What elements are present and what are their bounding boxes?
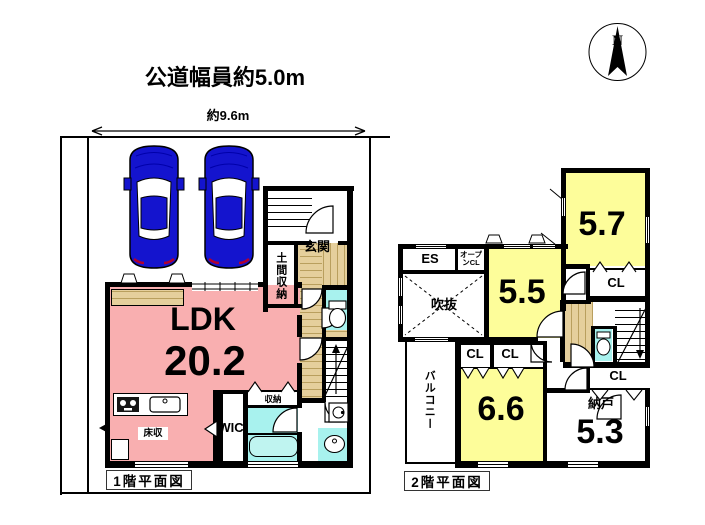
lot-line-left <box>87 137 89 494</box>
balcony-label: バルコニー <box>420 362 437 438</box>
wall <box>455 461 478 468</box>
storeroom-label: 納戸 <box>583 396 619 411</box>
storeroom-area-label: 5.3 <box>572 412 628 454</box>
window <box>645 407 650 426</box>
road-line-left <box>60 136 62 495</box>
wall <box>543 341 547 468</box>
wall <box>347 186 353 468</box>
wall <box>247 405 299 408</box>
wall <box>484 244 489 342</box>
wall <box>455 341 460 461</box>
window <box>416 244 446 249</box>
ldk-area-label: 20.2 <box>143 338 267 384</box>
car-icon <box>124 146 184 268</box>
lot-line-bottom <box>61 492 371 494</box>
closet-label: CL <box>496 346 524 362</box>
wall <box>398 270 487 274</box>
bedroom-5-5-label: 5.5 <box>494 272 550 314</box>
wall <box>322 290 326 308</box>
window <box>248 461 298 468</box>
wall <box>188 461 248 468</box>
wall <box>560 300 591 304</box>
wall <box>322 337 352 341</box>
toilet-room-1f <box>324 290 348 330</box>
washing-machine-icon <box>329 403 348 422</box>
wall <box>105 282 110 468</box>
cabinet <box>111 439 129 460</box>
window <box>415 337 448 342</box>
closet-line <box>590 268 646 270</box>
floor2-caption: 2階平面図 <box>404 471 490 491</box>
road-width-label: 公道幅員約5.0m <box>135 63 315 93</box>
closet-label: CL <box>598 368 638 384</box>
wall <box>297 315 302 337</box>
hallway-1f <box>300 245 322 403</box>
wall <box>586 296 650 302</box>
wall <box>298 461 353 468</box>
wall <box>560 300 565 362</box>
compass-icon: N <box>589 24 646 81</box>
doma-storage-label: 土間収納 <box>272 246 288 306</box>
closet-label: CL <box>461 346 489 362</box>
wall <box>490 341 494 369</box>
wall <box>455 341 543 345</box>
wall <box>561 168 566 198</box>
wall <box>263 186 354 191</box>
window <box>398 306 403 324</box>
window <box>398 278 403 296</box>
wall <box>247 390 297 392</box>
window <box>561 198 566 216</box>
dimension-arrow <box>92 127 365 135</box>
wic-label: WIC <box>216 420 246 435</box>
window <box>135 461 188 468</box>
window <box>504 244 530 249</box>
ldk-label: LDK <box>143 302 263 338</box>
window <box>192 282 258 291</box>
hallway-2f <box>565 302 593 362</box>
wall <box>613 326 617 366</box>
wall <box>247 433 299 435</box>
bedroom-5-7-label: 5.7 <box>574 204 630 246</box>
closet-label: CL <box>596 275 636 291</box>
wall <box>508 461 568 468</box>
floor1-caption: 1階平面図 <box>106 470 192 490</box>
wall <box>398 337 415 342</box>
wall <box>591 326 595 364</box>
bedroom-6-6-label: 6.6 <box>473 389 529 431</box>
floorplan-page: 公道幅員約5.0m 約9.6m LDK 20.2 玄関 土間収納 <box>0 0 705 525</box>
window <box>478 461 508 468</box>
stairs-2f <box>615 304 646 362</box>
wall <box>645 388 650 407</box>
road-line-top <box>61 136 390 138</box>
window <box>568 461 598 468</box>
wall <box>598 461 650 468</box>
bathtub <box>249 436 298 457</box>
wall <box>322 285 352 290</box>
open-closet-label: オープンCL <box>458 247 484 270</box>
stairs-1f <box>324 341 348 399</box>
wall <box>561 216 566 246</box>
car-icon <box>199 146 259 268</box>
lot-line-right <box>369 137 371 494</box>
closet-line <box>459 367 543 369</box>
wall <box>322 341 326 402</box>
void-label: 吹抜 <box>418 297 470 313</box>
porch-steps <box>268 192 312 230</box>
wall <box>263 186 268 312</box>
lot-width-label: 約9.6m <box>192 108 264 124</box>
wall <box>338 241 347 245</box>
wall <box>543 388 590 393</box>
wall <box>297 398 325 403</box>
window <box>533 244 555 249</box>
wall <box>398 296 403 306</box>
compass-north-label: N <box>612 33 623 49</box>
storage-label: 収納 <box>252 394 294 405</box>
closet-line <box>590 388 650 390</box>
window <box>645 217 650 243</box>
toilet-room-2f <box>595 329 612 361</box>
wall <box>105 461 135 468</box>
floor-storage-label: 床収 <box>138 427 168 440</box>
washroom <box>318 428 349 461</box>
wall <box>561 168 650 173</box>
kitchen-counter <box>113 393 188 416</box>
es-label: ES <box>408 250 452 268</box>
genkan-label: 玄関 <box>297 239 337 255</box>
wall <box>297 282 302 288</box>
